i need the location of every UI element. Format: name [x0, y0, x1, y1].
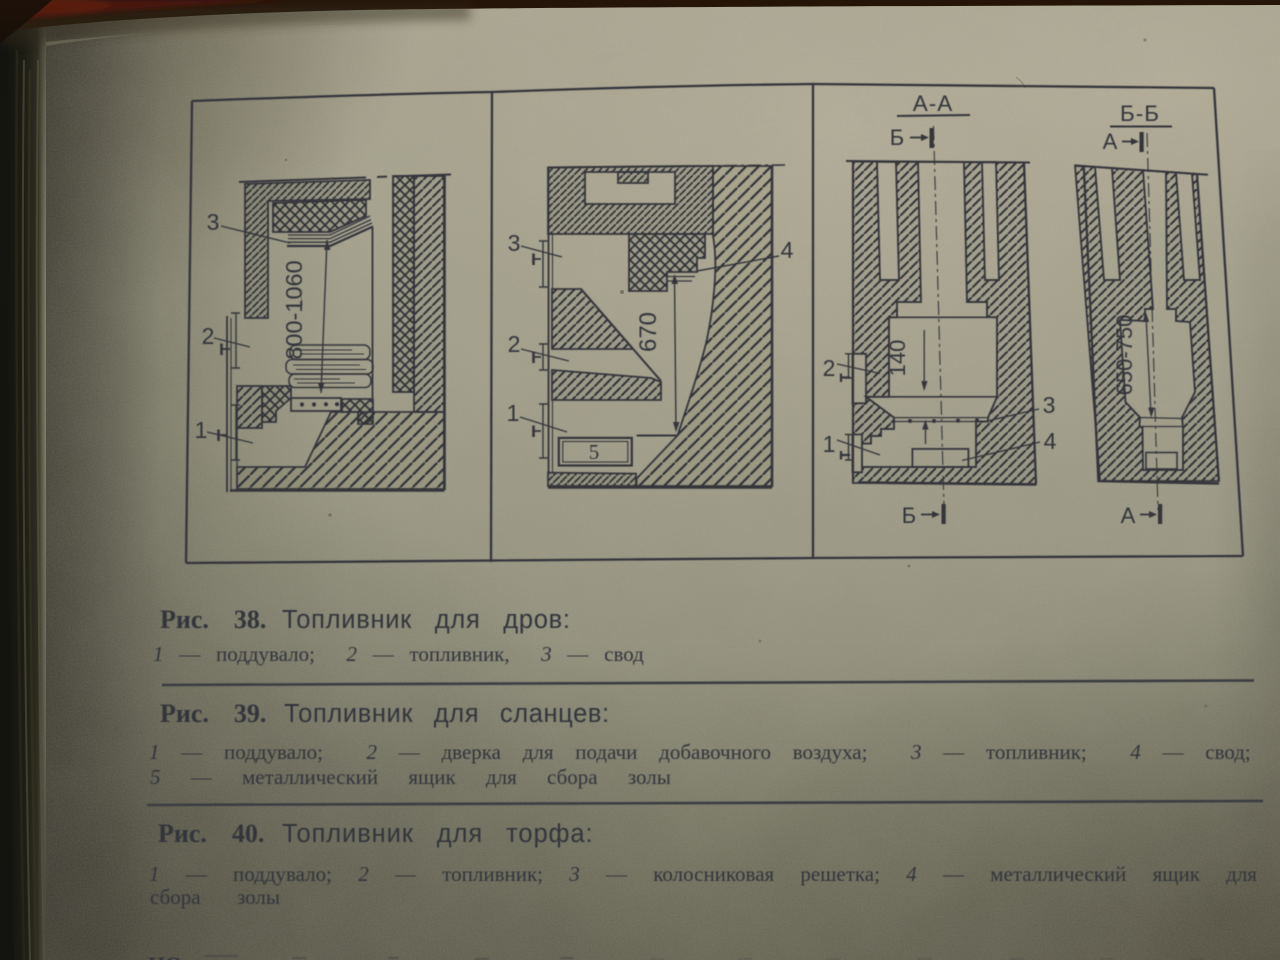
svg-text:1: 1	[823, 431, 836, 457]
svg-text:3: 3	[1043, 392, 1056, 418]
svg-text:4: 4	[781, 237, 794, 263]
svg-text:А: А	[1103, 129, 1118, 154]
svg-text:3: 3	[508, 230, 521, 256]
svg-text:А-А: А-А	[913, 91, 954, 116]
svg-text:Б: Б	[890, 125, 904, 150]
svg-text:1: 1	[507, 400, 520, 426]
svg-text:2: 2	[508, 331, 521, 357]
svg-text:Рис. 39.: Рис. 39.	[160, 699, 266, 728]
svg-text:Топливник для торфа:: Топливник для торфа:	[282, 820, 593, 848]
svg-text:1: 1	[195, 417, 208, 443]
svg-text:1 — поддувало; 2 — топливник,: 1 — поддувало; 2 — топливник, 3 — свод	[153, 642, 644, 666]
svg-text:Рис. 38.: Рис. 38.	[160, 605, 266, 634]
svg-text:2: 2	[202, 323, 215, 349]
svg-text:Топливник для дров:: Топливник для дров:	[282, 606, 571, 634]
svg-text:140: 140	[885, 340, 910, 377]
svg-text:1 — поддувало; 2 — топливник;: 1 — поддувало; 2 — топливник; 3 — колосн…	[149, 862, 1257, 886]
svg-text:5: 5	[589, 440, 600, 464]
svg-text:НО: НО	[148, 952, 182, 960]
svg-text:650-750: 650-750	[1112, 315, 1137, 396]
svg-text:1 — поддувало; 2 — дверка для: 1 — поддувало; 2 — дверка для подачи доб…	[149, 740, 1251, 764]
svg-text:Рис. 40.: Рис. 40.	[158, 819, 264, 848]
svg-text:3: 3	[207, 209, 220, 235]
svg-text:670: 670	[635, 312, 662, 352]
svg-text:2: 2	[823, 355, 836, 381]
svg-text:Б-Б: Б-Б	[1120, 101, 1160, 126]
svg-text:4: 4	[1044, 428, 1057, 454]
svg-text:800-1060: 800-1060	[281, 260, 307, 359]
svg-text:5 — металлический ящик для сбо: 5 — металлический ящик для сбора золы	[150, 765, 671, 789]
svg-text:А: А	[1121, 503, 1136, 528]
svg-text:Б: Б	[902, 503, 916, 528]
svg-text:Топливник для сланцев:: Топливник для сланцев:	[284, 700, 610, 728]
